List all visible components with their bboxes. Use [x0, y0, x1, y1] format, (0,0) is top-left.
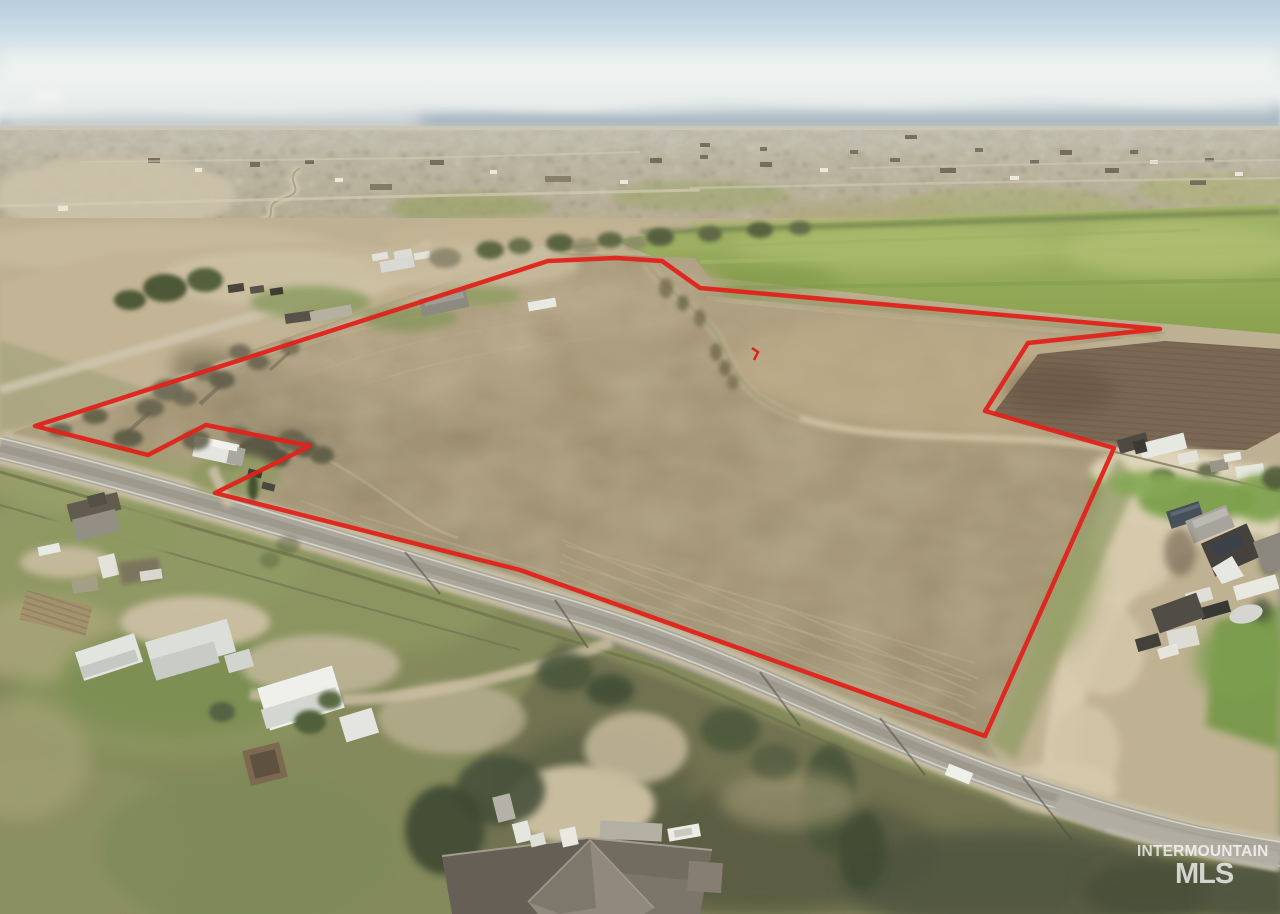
svg-text:MLS: MLS	[1175, 858, 1234, 890]
